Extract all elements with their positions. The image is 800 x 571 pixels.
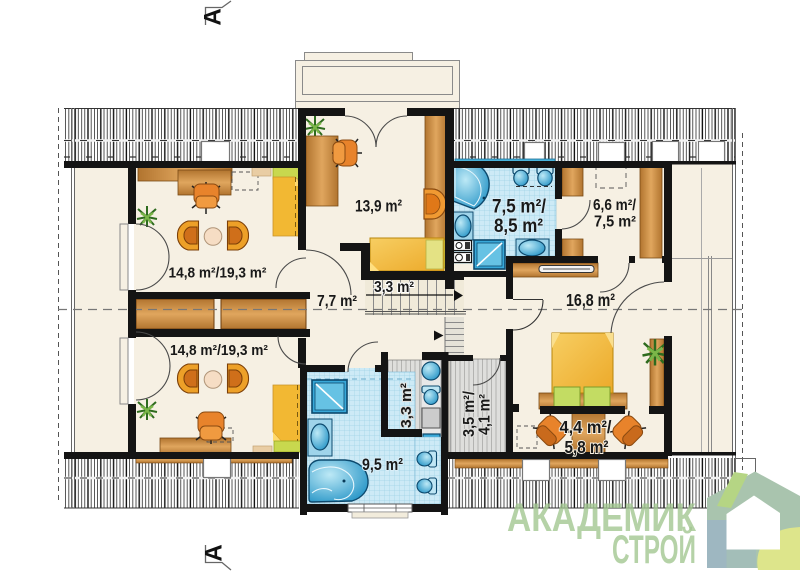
svg-text:4,1 m²: 4,1 m²: [477, 394, 494, 435]
svg-text:3,3 m²: 3,3 m²: [398, 383, 415, 428]
svg-text:A: A: [199, 8, 226, 25]
svg-text:5,8 m²: 5,8 m²: [565, 437, 609, 457]
svg-text:7,5 m²/: 7,5 m²/: [492, 197, 547, 218]
svg-text:4,4 m²/: 4,4 m²/: [560, 417, 612, 437]
svg-text:13,9 m²: 13,9 m²: [355, 197, 402, 216]
svg-text:7,7 m²: 7,7 m²: [317, 293, 357, 310]
svg-text:СТРОЙ: СТРОЙ: [612, 526, 696, 571]
svg-text:6,6 m²/: 6,6 m²/: [593, 197, 637, 214]
svg-text:8,5 m²: 8,5 m²: [494, 216, 543, 237]
svg-text:14,8 m²/19,3 m²: 14,8 m²/19,3 m²: [169, 266, 267, 282]
svg-text:3,5 m²/: 3,5 m²/: [461, 390, 478, 437]
svg-text:9,5 m²: 9,5 m²: [362, 455, 403, 474]
svg-text:16,8 m²: 16,8 m²: [566, 290, 615, 310]
svg-text:3,3 m²: 3,3 m²: [374, 279, 414, 296]
svg-text:A: A: [200, 544, 227, 561]
svg-text:14,8 m²/19,3 m²: 14,8 m²/19,3 m²: [170, 343, 268, 359]
svg-text:7,5 m²: 7,5 m²: [594, 214, 636, 231]
